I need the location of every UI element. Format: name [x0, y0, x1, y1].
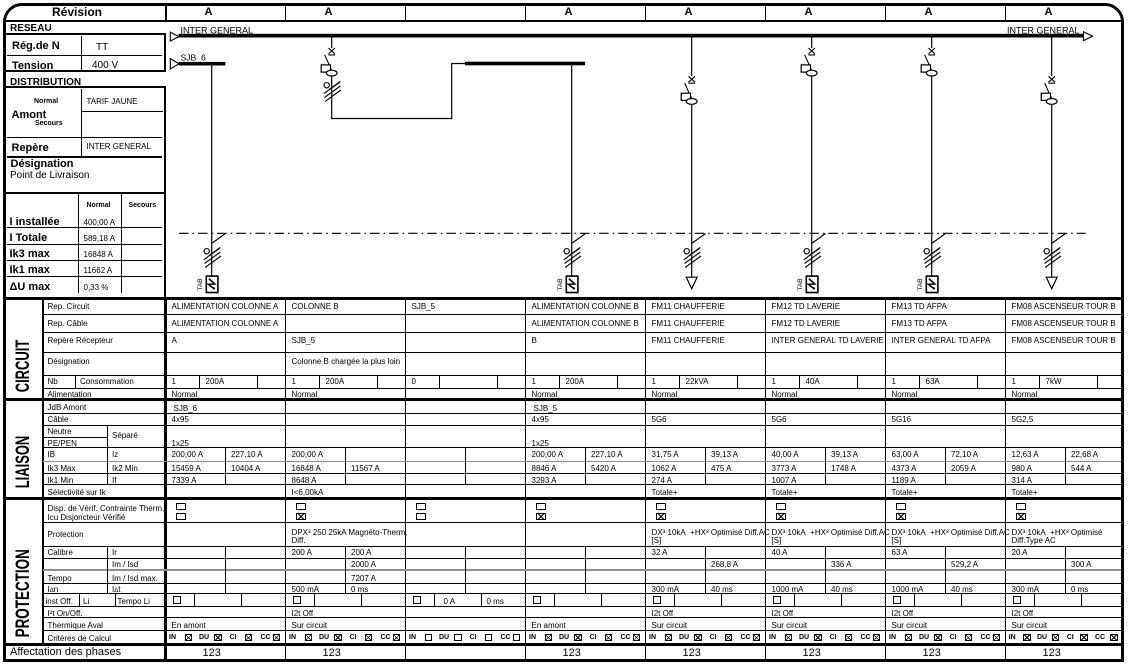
svg-text:TAB: TAB [917, 278, 924, 290]
svg-text:INTER GENERAL: INTER GENERAL [181, 25, 254, 35]
svg-text:TAB: TAB [197, 278, 204, 290]
svg-text:TAB: TAB [797, 278, 804, 290]
svg-text:INTER GENERAL: INTER GENERAL [1007, 25, 1080, 35]
svg-text:SJB 6: SJB 6 [181, 53, 207, 63]
svg-text:TAB: TAB [557, 278, 564, 290]
